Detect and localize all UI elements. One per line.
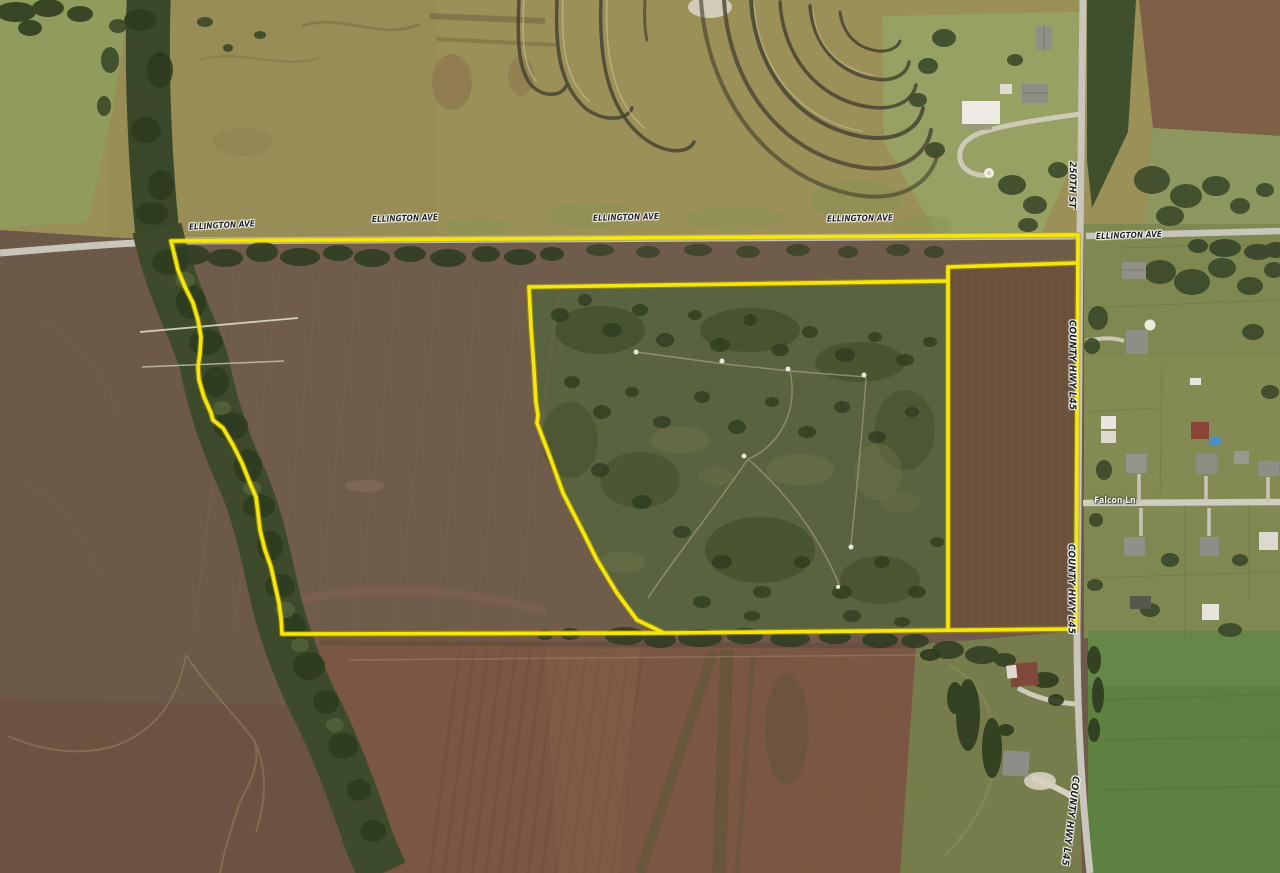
road-label-250th-st: 250TH ST: [1066, 161, 1078, 208]
road-label-county-hwy-l45-north: COUNTY HWY L45: [1067, 320, 1078, 410]
satellite-map-canvas[interactable]: ELLINGTON AVE ELLINGTON AVE ELLINGTON AV…: [0, 0, 1280, 873]
fields-base: [0, 0, 1280, 873]
road-label-county-hwy-l45-south: COUNTY HWY L45: [1066, 544, 1077, 634]
road-label-ellington-ave-4: ELLINGTON AVE: [827, 213, 893, 224]
road-label-ellington-ave-3: ELLINGTON AVE: [593, 212, 659, 224]
road-label-falcon-ln: Falcon Ln: [1094, 496, 1135, 506]
aerial-imagery: [0, 0, 1280, 873]
